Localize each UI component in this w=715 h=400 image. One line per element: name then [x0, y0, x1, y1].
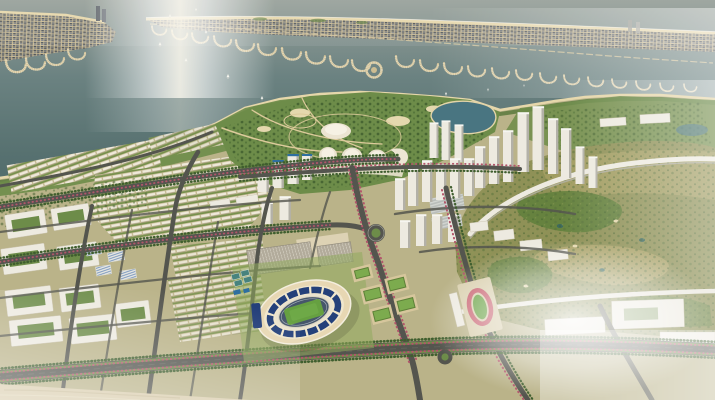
sand-patch	[290, 109, 310, 118]
large-dome-top	[325, 124, 347, 135]
roundabout	[367, 224, 385, 242]
sand-patch	[386, 116, 410, 126]
scene-svg	[0, 0, 715, 400]
sand-patch	[257, 126, 271, 132]
masterplan-render	[0, 0, 715, 400]
